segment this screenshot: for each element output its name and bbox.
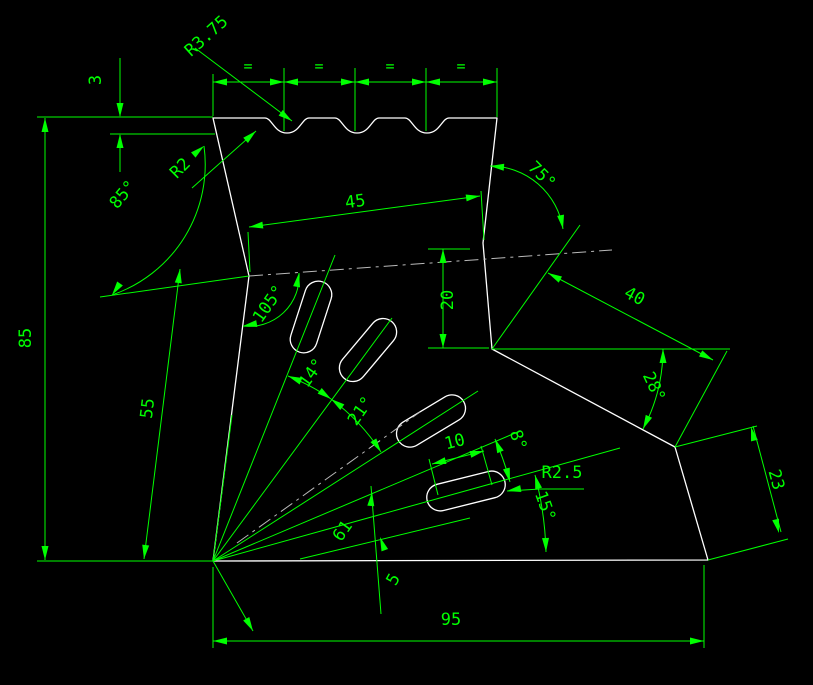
- dim-label-fan-angle-3[interactable]: 8°: [505, 427, 531, 453]
- dim-label-equal-2[interactable]: =: [314, 57, 323, 75]
- dim-label-corner-radius[interactable]: R2: [166, 154, 195, 183]
- dim-label-fan-angle-4[interactable]: 15°: [530, 488, 559, 524]
- slot-1[interactable]: [287, 278, 336, 357]
- dim-label-right-edge-angle[interactable]: 28°: [638, 369, 669, 405]
- dim-label-lower-right-edge[interactable]: 23: [764, 467, 789, 492]
- dim-label-slot-end-radius[interactable]: R2.5: [542, 463, 583, 483]
- dimension-lines: [37, 48, 788, 648]
- dim-label-slot-offset[interactable]: 5: [382, 570, 404, 589]
- dim-label-base-width[interactable]: 95: [441, 610, 461, 630]
- slots: [287, 278, 508, 514]
- dim-label-scallop-depth[interactable]: 3: [86, 75, 106, 85]
- dim-label-left-top-angle[interactable]: 85°: [106, 177, 141, 213]
- dim-label-upper-right-edge[interactable]: 40: [621, 283, 648, 310]
- dim-label-top-width[interactable]: 45: [344, 191, 367, 214]
- dim-label-left-edge-length[interactable]: 55: [137, 397, 159, 420]
- cad-drawing[interactable]: R3.75 = = = = 3 R2 85° 45 75° 85 55 105°…: [0, 0, 813, 685]
- dim-label-apex-to-slot[interactable]: 61: [329, 517, 357, 545]
- dim-label-equal-1[interactable]: =: [243, 57, 252, 75]
- centerline-top: [249, 250, 612, 276]
- part-outline[interactable]: [213, 118, 708, 561]
- dim-label-slot-spacing[interactable]: 10: [442, 430, 467, 454]
- dim-label-fan-angle-1[interactable]: 14°: [295, 355, 329, 392]
- dim-label-right-step-depth[interactable]: 20: [438, 290, 458, 310]
- dimension-labels: R3.75 = = = = 3 R2 85° 45 75° 85 55 105°…: [16, 12, 788, 630]
- dim-label-equal-4[interactable]: =: [456, 57, 465, 75]
- centerlines: [237, 250, 612, 543]
- dim-label-overall-height[interactable]: 85: [16, 328, 36, 348]
- dim-label-left-vertex-angle[interactable]: 105°: [249, 282, 289, 327]
- dim-label-scallop-radius[interactable]: R3.75: [181, 12, 232, 61]
- dim-label-right-top-angle[interactable]: 75°: [524, 158, 560, 194]
- dim-label-equal-3[interactable]: =: [385, 57, 394, 75]
- cad-viewport[interactable]: R3.75 = = = = 3 R2 85° 45 75° 85 55 105°…: [0, 0, 813, 685]
- dim-label-fan-angle-2[interactable]: 21°: [344, 393, 378, 430]
